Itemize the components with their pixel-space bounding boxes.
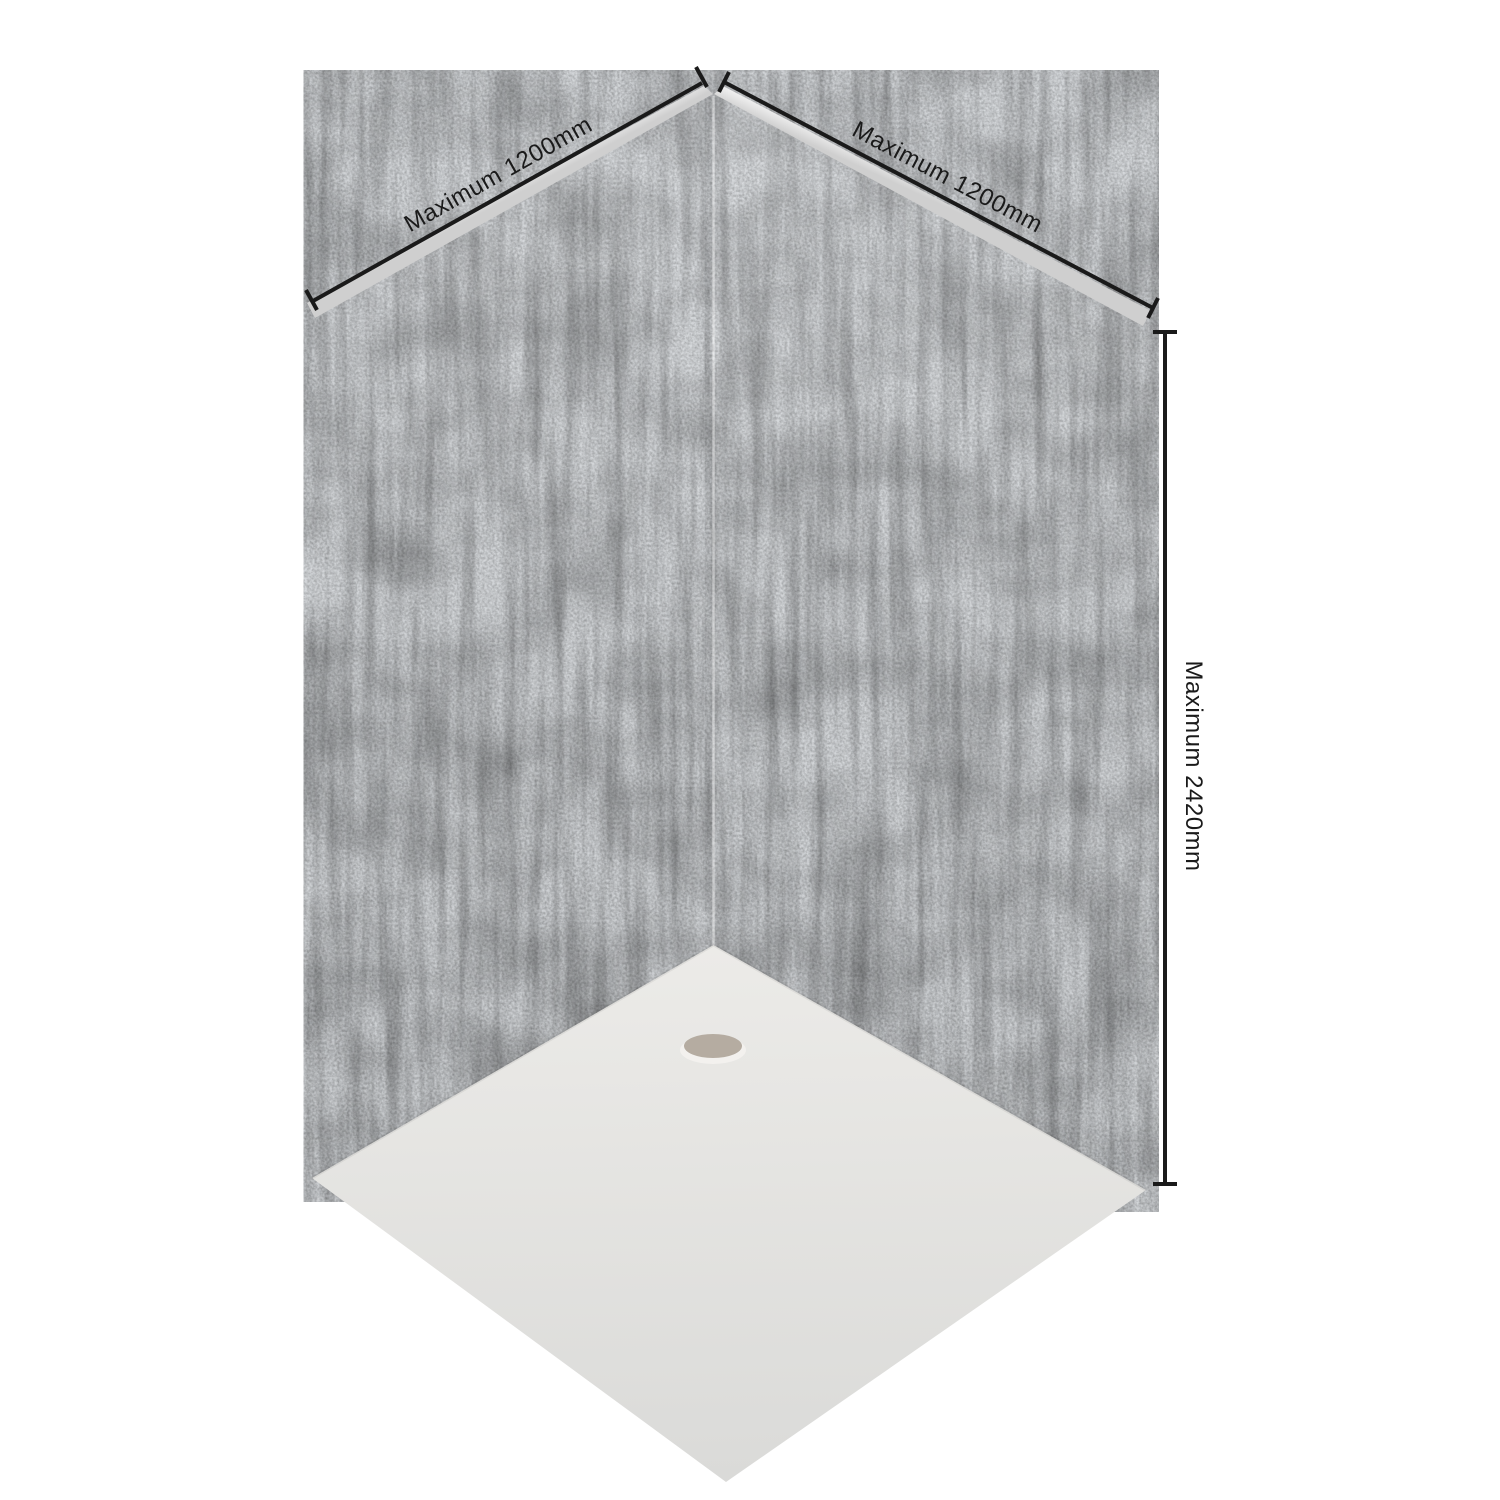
shower-panel-dimension-diagram: Maximum 1200mm Maximum 1200mm Maximum 24… — [0, 0, 1500, 1500]
dimension-label-height: Maximum 2420mm — [1180, 660, 1207, 871]
diagram-canvas: Maximum 1200mm Maximum 1200mm Maximum 24… — [0, 0, 1500, 1500]
dimension-height — [1153, 332, 1177, 1184]
drain — [684, 1034, 742, 1058]
